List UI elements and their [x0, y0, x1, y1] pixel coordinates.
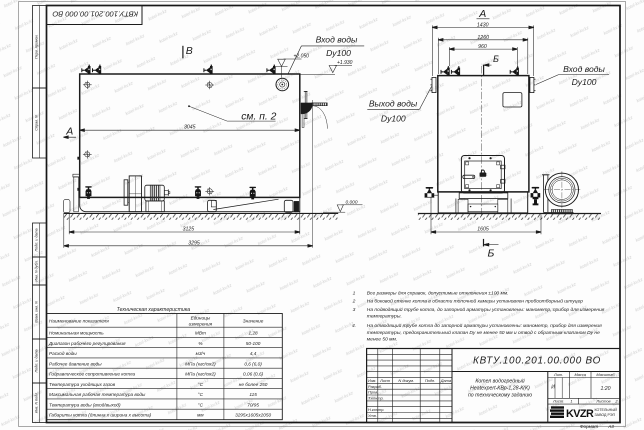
svg-text:Подп. и дата: Подп. и дата: [35, 349, 39, 372]
svg-text:температуры.: температуры.: [367, 315, 402, 320]
svg-text:Номинальная мощность: Номинальная мощность: [49, 331, 104, 336]
svg-text:0,06 (0,6): 0,06 (0,6): [243, 372, 264, 377]
svg-text:Техническая характеристика: Техническая характеристика: [117, 307, 191, 313]
svg-text:0.000: 0.000: [346, 200, 358, 206]
svg-text:1: 1: [570, 399, 572, 404]
svg-text:1605: 1605: [477, 227, 489, 233]
svg-text:3295х1605х2050: 3295х1605х2050: [235, 413, 271, 418]
svg-text:В: В: [186, 45, 193, 57]
svg-text:°С: °С: [198, 382, 204, 387]
svg-text:Масса: Масса: [574, 372, 586, 377]
svg-text:Температура уходящих газов: Температура уходящих газов: [49, 382, 116, 387]
svg-text:3295: 3295: [188, 240, 200, 246]
svg-text:Подп. и дата: Подп. и дата: [35, 228, 39, 251]
svg-text:50-100: 50-100: [246, 341, 261, 346]
svg-text:ЗАВОД РЭП: ЗАВОД РЭП: [595, 413, 616, 417]
svg-text:Инв. N дубл.: Инв. N дубл.: [35, 260, 39, 281]
svg-text:1:20: 1:20: [600, 386, 610, 392]
svg-text:70/95: 70/95: [247, 402, 259, 407]
svg-text:И: И: [551, 385, 555, 391]
svg-text:Разраб.: Разраб.: [368, 384, 382, 389]
svg-text:°С: °С: [198, 402, 204, 407]
svg-text:Dy100: Dy100: [381, 114, 406, 124]
svg-text:мм: мм: [197, 413, 204, 418]
svg-text:МПа (кгс/см2): МПа (кгс/см2): [185, 361, 216, 366]
svg-text:Масштаб: Масштаб: [596, 372, 615, 377]
svg-text:Максимальная рабочая температу: Максимальная рабочая температура воды: [49, 392, 146, 397]
svg-text:°С: °С: [198, 392, 204, 397]
svg-text:Пров.: Пров.: [368, 390, 378, 395]
svg-text:На отводящий трубе котла до за: На отводящий трубе котла до запорной арм…: [367, 322, 602, 329]
svg-text:КВТУ.100.201.00.000 ВО: КВТУ.100.201.00.000 ВО: [473, 356, 601, 367]
svg-text:На боковой стенке котла в обла: На боковой стенке котла в области топочн…: [367, 298, 583, 305]
svg-text:Инв. N подл.: Инв. N подл.: [35, 392, 39, 414]
svg-text:+1.930: +1.930: [337, 60, 353, 66]
svg-text:см. п. 2: см. п. 2: [241, 112, 276, 123]
svg-text:Габариты котла (длинна х ширин: Габариты котла (длинна х ширина х высота…: [49, 413, 152, 418]
svg-text:м3/ч: м3/ч: [196, 351, 206, 356]
svg-text:Изм.: Изм.: [368, 378, 376, 383]
svg-text:2: 2: [352, 299, 356, 305]
svg-text:А3: А3: [607, 424, 614, 429]
svg-text:Dy100: Dy100: [572, 77, 597, 87]
svg-text:Н.контр.: Н.контр.: [368, 407, 384, 412]
svg-text:Лит.: Лит.: [553, 372, 563, 377]
svg-text:МВт: МВт: [195, 331, 206, 336]
svg-text:1430: 1430: [477, 23, 489, 29]
svg-text:А: А: [478, 8, 486, 20]
svg-text:3045: 3045: [184, 124, 196, 130]
svg-text:Dy100: Dy100: [326, 48, 351, 58]
svg-text:Котел водогрейный: Котел водогрейный: [475, 378, 524, 385]
svg-text:1260: 1260: [477, 35, 489, 41]
svg-text:Все размеры для справок, допус: Все размеры для справок, допустимые откл…: [367, 290, 509, 296]
svg-text:+2.050: +2.050: [294, 54, 310, 60]
svg-text:960: 960: [478, 44, 487, 50]
svg-text:1: 1: [353, 290, 356, 296]
svg-text:Температура воды (вход/выход): Температура воды (вход/выход): [49, 402, 121, 407]
svg-text:4.: 4.: [352, 323, 356, 329]
svg-text:измерения: измерения: [189, 321, 213, 326]
svg-text:Heatexpert-КВр-1,28-К(К): Heatexpert-КВр-1,28-К(К): [470, 386, 530, 392]
svg-text:3125: 3125: [183, 227, 195, 233]
svg-text:Вход воды: Вход воды: [563, 64, 605, 74]
svg-text:115: 115: [249, 392, 257, 397]
svg-text:А: А: [65, 126, 73, 138]
svg-text:Взам. инв. N: Взам. инв. N: [35, 301, 39, 323]
svg-text:Дата: Дата: [440, 378, 452, 383]
svg-text:Листов: Листов: [595, 399, 610, 404]
svg-text:Расход воды: Расход воды: [49, 351, 77, 356]
svg-text:1,28: 1,28: [249, 331, 259, 336]
svg-text:Наименование показателя: Наименование показателя: [49, 319, 109, 324]
svg-text:На подводящий трубе котла, д: На подводящий трубе котла, до запорной а…: [367, 306, 605, 313]
svg-text:Лист: Лист: [552, 399, 564, 404]
svg-text:МПа (кгс/см2): МПа (кгс/см2): [185, 372, 216, 377]
svg-text:%: %: [198, 341, 202, 346]
svg-text:Гидравлическое сопротивление к: Гидравлическое сопротивление котла: [49, 372, 136, 377]
svg-text:Лист: Лист: [379, 378, 391, 383]
svg-text:Б: Б: [488, 247, 495, 259]
svg-text:N докум.: N докум.: [398, 378, 414, 383]
svg-text:Вход воды: Вход воды: [316, 34, 358, 44]
svg-text:по техническому заданию: по техническому заданию: [468, 393, 532, 399]
svg-text:не более 250: не более 250: [239, 382, 268, 387]
svg-text:4,4: 4,4: [250, 351, 257, 356]
svg-text:температуры, предохранительный: температуры, предохранительный клапан Dу…: [367, 329, 600, 336]
svg-text:3: 3: [353, 307, 356, 313]
svg-text:Диапазон рабочего регулировани: Диапазон рабочего регулирования: [48, 341, 126, 346]
svg-text:менее 50 мм.: менее 50 мм.: [367, 337, 397, 343]
svg-text:Выход воды: Выход воды: [369, 99, 418, 109]
svg-text:Подп.: Подп.: [425, 378, 435, 383]
svg-text:Т.контр.: Т.контр.: [368, 395, 384, 400]
svg-text:Перв. примен.: Перв. примен.: [35, 34, 39, 59]
svg-text:Утв.: Утв.: [368, 413, 377, 418]
svg-text:KVZR: KVZR: [566, 408, 594, 420]
svg-text:Единицы: Единицы: [191, 315, 211, 320]
svg-text:КВТУ.100.201.00.000 ВО: КВТУ.100.201.00.000 ВО: [52, 9, 138, 18]
svg-text:Значение: Значение: [243, 319, 264, 324]
svg-text:Справ. N: Справ. N: [35, 115, 39, 131]
svg-text:Рабочее давление воды: Рабочее давление воды: [49, 361, 102, 366]
svg-text:Формат: Формат: [580, 424, 598, 429]
svg-text:Б: Б: [493, 54, 499, 64]
svg-text:0,6 (6,0): 0,6 (6,0): [244, 361, 262, 366]
svg-text:КОТЕЛЬНЫЙ: КОТЕЛЬНЫЙ: [595, 408, 618, 412]
